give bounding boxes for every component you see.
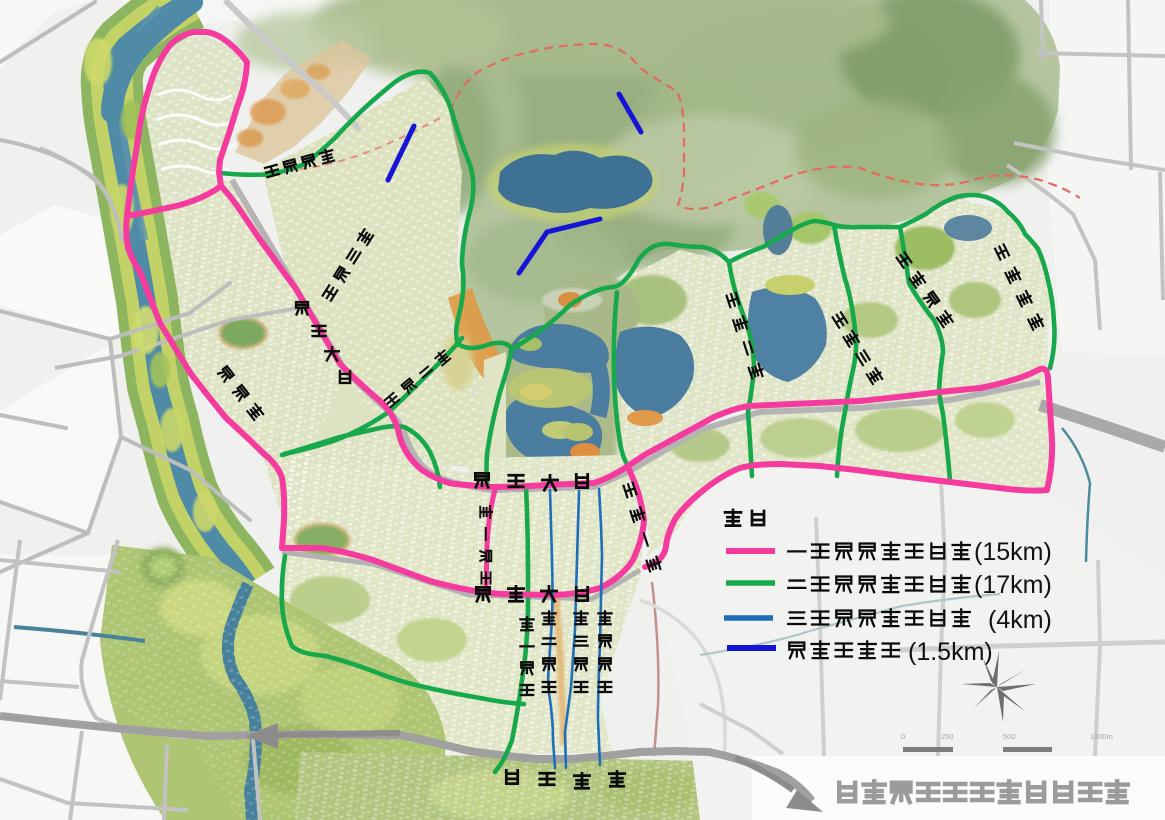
svg-text:500: 500 (1003, 732, 1016, 741)
svg-text:1000m: 1000m (1090, 732, 1113, 741)
svg-text:(4km): (4km) (988, 606, 1052, 634)
svg-text:(17km): (17km) (974, 571, 1052, 599)
svg-text:250: 250 (941, 732, 954, 741)
svg-text:(1.5km): (1.5km) (908, 638, 993, 666)
svg-text:(15km): (15km) (974, 538, 1052, 566)
svg-text:0: 0 (901, 732, 905, 741)
